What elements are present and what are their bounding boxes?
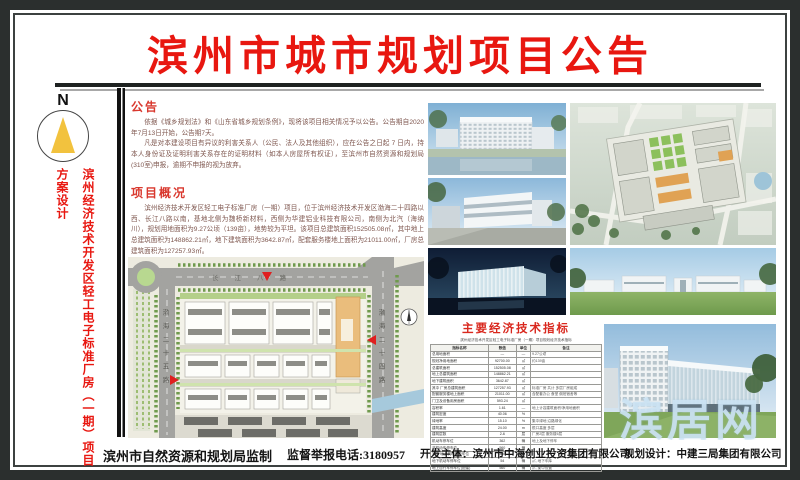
overview-heading: 项目概况 [131,184,424,201]
indicator-row: 绿地率15.10%集中绿地 沿路绿化 [431,418,602,425]
indicator-row: 总建筑面积152505.08㎡ [431,365,602,372]
site-plan-map: 长江八路 渤海二十五路 渤海二十四路 [128,257,424,438]
rendering-aerial-view [570,103,776,245]
indicator-row: 建筑高度24.00m檐口高度 多层 [431,425,602,432]
watermark-binju-logo: 滨居网 [604,392,778,440]
indicator-row: 规划净用地面积92700.00㎡约139亩 [431,358,602,365]
indicator-row: 建筑层数2-6层厂房2层 服务楼6层 [431,431,602,438]
indicator-row: 容积率1.61—地上计容建筑面积/净用地面积 [431,405,602,412]
footer-producer: 滨州市自然资源和规划局监制 [103,446,272,465]
indicator-column-header: 指标名称 [431,345,489,352]
overview-para: 滨州经济技术开发区轻工电子标准厂房（一期）项目，位于滨州经济技术开发区渤海二十四… [131,204,424,258]
title-rule [55,83,761,87]
compass-icon [37,110,89,162]
rendering-day-street [428,178,566,245]
footer-designer: 规划设计：中建三局集团有限公司 [624,446,782,461]
indicator-row: 门卫及设备用房面积593.24㎡ [431,398,602,405]
rendering-day-waterfront [428,103,566,175]
road-label-bohai-24: 渤海二十四路 [375,309,385,390]
indicator-row: 其中 厂房总建筑面积127257.93㎡标准厂房 共计 多层厂房组成 [431,385,602,392]
vertical-divider [117,88,125,437]
rendering-night-view [428,248,566,315]
indicator-row: 地上总建筑面积148862.21㎡ [431,371,602,378]
rendering-lawn-panorama [570,248,776,315]
indicators-title: 主要经济技术指标 [430,320,602,336]
road-label-changjiang-8: 长江八路 [212,272,302,282]
announcement-para2: 凡是对本建设项目有异议的利害关系人（公民、法人及其他组织），应在公告之日起 7 … [131,139,424,171]
overview-section: 项目概况 滨州经济技术开发区轻工电子标准厂房（一期）项目，位于滨州经济技术开发区… [131,184,424,258]
indicator-row: 地上自行车停车位(配建)560辆㎡, 集中设置 [431,465,602,472]
indicator-row: 建筑密度40.06% [431,411,602,418]
announcement-para1: 依据《城乡规划法》和《山东省城乡规划条例》，现将该项目相关情况予以公告。公告期自… [131,118,424,139]
indicator-row: 配套服务楼地上面积21011.00㎡含配套办公 食堂 倒班宿舍等 [431,391,602,398]
indicators-header-row: 指标名称数值单位备注 [431,345,602,352]
indicators-caption: 滨州经济技术开发区轻工电子标准厂房（一期）项目规划经济技术指标 [430,338,602,343]
announcement-section: 公告 依据《城乡规划法》和《山东省城乡规划条例》，现将该项目相关情况予以公告。公… [131,98,424,172]
compass-north-label: N [36,92,90,110]
indicator-row: 地下建筑面积3642.87㎡ [431,378,602,385]
indicator-row: 总用地面积——9.27公顷 [431,351,602,358]
road-label-bohai-25: 渤海二十五路 [159,309,169,390]
indicator-column-header: 备注 [531,345,602,352]
indicator-column-header: 数值 [488,345,516,352]
footer-hotline: 监督举报电话:3180957 [287,446,405,463]
title-rule-shadow [60,89,764,91]
compass-needle [51,117,75,153]
poster-title: 滨州市城市规划项目公告 [0,22,800,82]
indicator-row: 机动车停车位362辆地上及地下停车 [431,438,602,445]
sidebar-project-title: 滨州经济技术开发区轻工电子标准厂房（一期）项目方案设计 [49,168,101,470]
footer-developer: 开发主体：滨州市中海创业投资集团有限公司 [420,446,630,461]
indicator-column-header: 单位 [516,345,530,352]
announcement-heading: 公告 [131,98,424,115]
